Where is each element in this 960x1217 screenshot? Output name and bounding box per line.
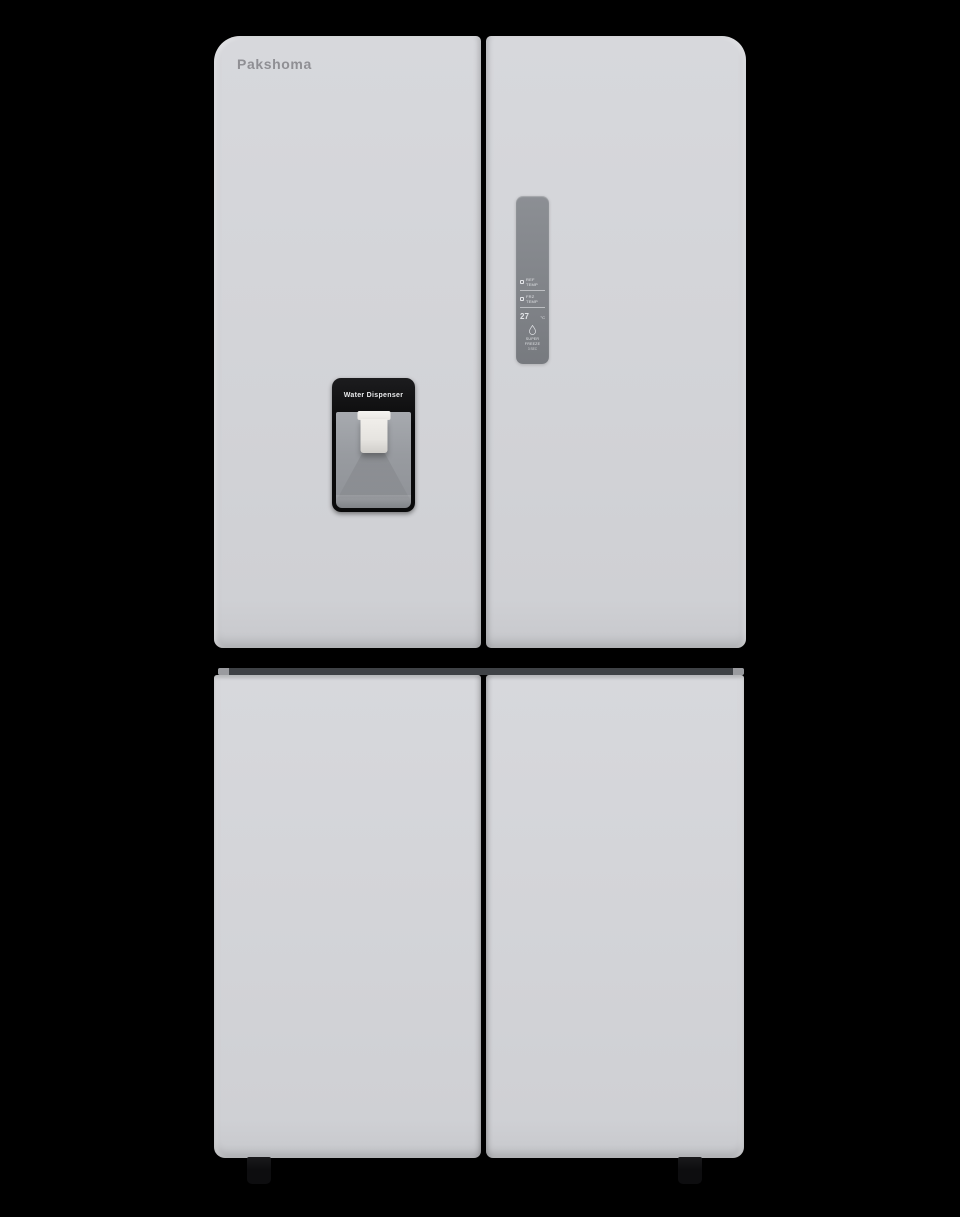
ref-temp-label: REF TEMP (526, 277, 545, 287)
function-sublabel: 3 SEC (520, 347, 545, 351)
function-label: SUPER FREEZE (520, 337, 545, 347)
fridge-icon (520, 280, 524, 284)
frz-temp-label: FRZ TEMP (526, 294, 545, 304)
panel-divider (520, 290, 545, 291)
freezer-icon (520, 297, 524, 301)
panel-divider (520, 307, 545, 308)
photo-stage: Pakshoma Water Dispenser REF TEMP (0, 0, 960, 1217)
brand-logo: Pakshoma (237, 56, 312, 72)
door-lower-left (214, 675, 481, 1158)
temperature-value: 27 (520, 312, 529, 321)
dispenser-label: Water Dispenser (344, 392, 403, 399)
foot-left (247, 1157, 271, 1184)
water-drop-icon (529, 325, 536, 335)
temperature-unit: °C (541, 315, 546, 320)
temperature-readout: 27 °C (520, 312, 545, 321)
hinge-cap-left (218, 668, 229, 675)
frz-temp-row: FRZ TEMP (520, 294, 545, 304)
hinge-cap-right (733, 668, 744, 675)
ref-temp-row: REF TEMP (520, 277, 545, 287)
dispenser-header: Water Dispenser (332, 378, 415, 412)
water-dispenser: Water Dispenser (332, 378, 415, 512)
door-upper-right: REF TEMP FRZ TEMP 27 °C SUPER FREEZE 3 S… (486, 36, 746, 648)
door-upper-left: Pakshoma Water Dispenser (214, 36, 481, 648)
dispenser-paddle (360, 419, 387, 453)
door-lower-right (486, 675, 744, 1158)
control-panel: REF TEMP FRZ TEMP 27 °C SUPER FREEZE 3 S… (516, 196, 549, 364)
foot-right (678, 1157, 702, 1184)
function-icon-wrap (520, 325, 545, 335)
center-divider-strip (218, 668, 744, 675)
dispenser-basin (336, 495, 411, 508)
